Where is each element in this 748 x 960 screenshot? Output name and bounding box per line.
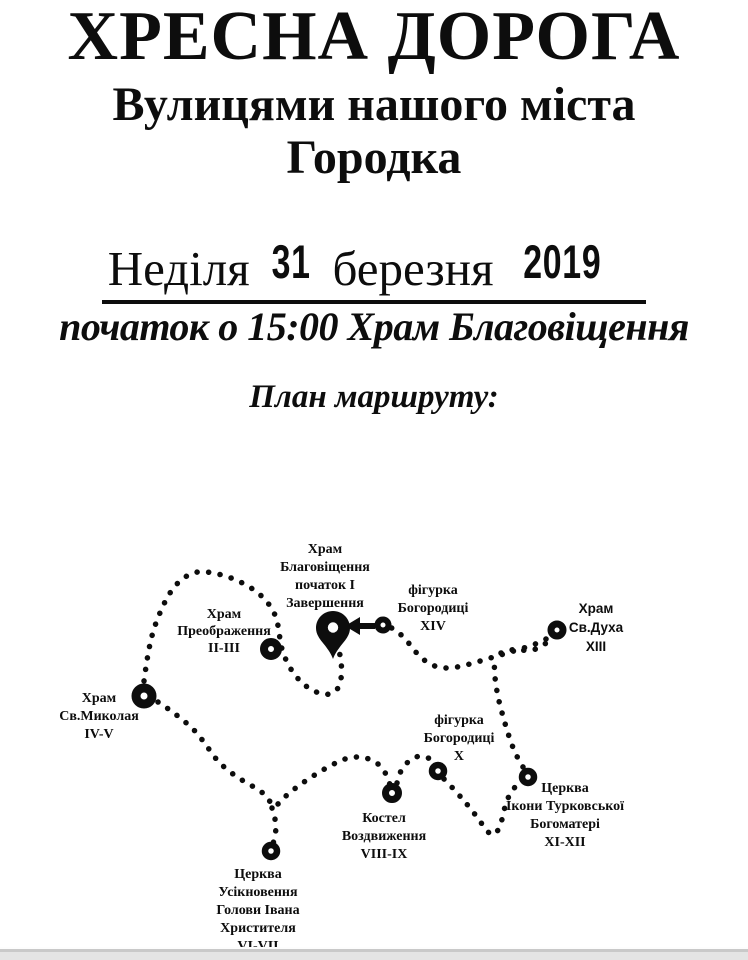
station-marker-bohorodytsi-xiv bbox=[378, 620, 389, 631]
poster-page: ХРЕСНА ДОРОГА Вулицями нашого міста Горо… bbox=[0, 0, 748, 960]
station-label-blahovishchennia: Храм Благовіщення початок І Завершення bbox=[280, 541, 370, 613]
station-label-preobrazhennia: Храм Преображення II-III bbox=[177, 606, 271, 657]
route-path-turkovskoi-to-junction2 bbox=[494, 657, 523, 767]
station-label-kostel: Костел Воздвиження VIII-IX bbox=[342, 810, 426, 864]
station-marker-usiknovennia bbox=[265, 845, 277, 857]
page-bottom-edge bbox=[0, 947, 748, 960]
station-marker-kostel bbox=[386, 787, 399, 800]
route-path-mykolaia-to-junction bbox=[158, 702, 272, 806]
route-path-junction-to-kostel bbox=[278, 757, 390, 804]
station-label-sv-dukha: Храм Св.Духа XIII bbox=[569, 599, 623, 656]
station-label-sv-mykolaia: Храм Св.Миколая IV-V bbox=[59, 690, 139, 744]
station-label-turkovskoi: Церква Ікони Турковської Богоматері XI-X… bbox=[506, 780, 624, 852]
station-marker-blahovishchennia bbox=[316, 611, 350, 659]
route-path-junction-to-usiknovennia bbox=[272, 808, 276, 844]
station-label-usiknovennia: Церква Усікновення Голови Івана Христите… bbox=[216, 866, 299, 956]
route-map: Храм Благовіщення початок І Завершення ф… bbox=[0, 0, 748, 960]
station-label-bohorodytsi-x: фігурка Богородиці X bbox=[424, 712, 495, 766]
station-label-bohorodytsi-xiv: фігурка Богородиці XIV bbox=[398, 582, 469, 636]
station-marker-sv-dukha bbox=[551, 624, 563, 636]
station-marker-bohorodytsi-x bbox=[432, 765, 444, 777]
